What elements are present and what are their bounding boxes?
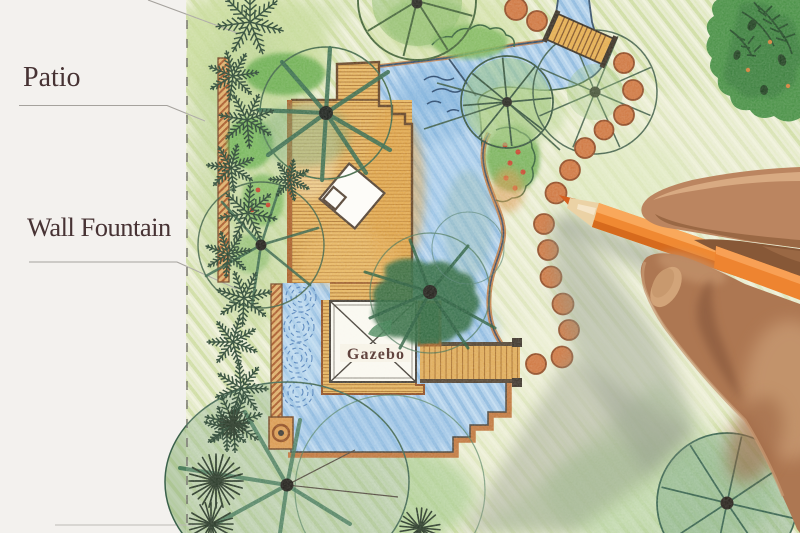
svg-text:Patio: Patio: [23, 62, 81, 93]
svg-text:Wall Fountain: Wall Fountain: [27, 212, 171, 242]
